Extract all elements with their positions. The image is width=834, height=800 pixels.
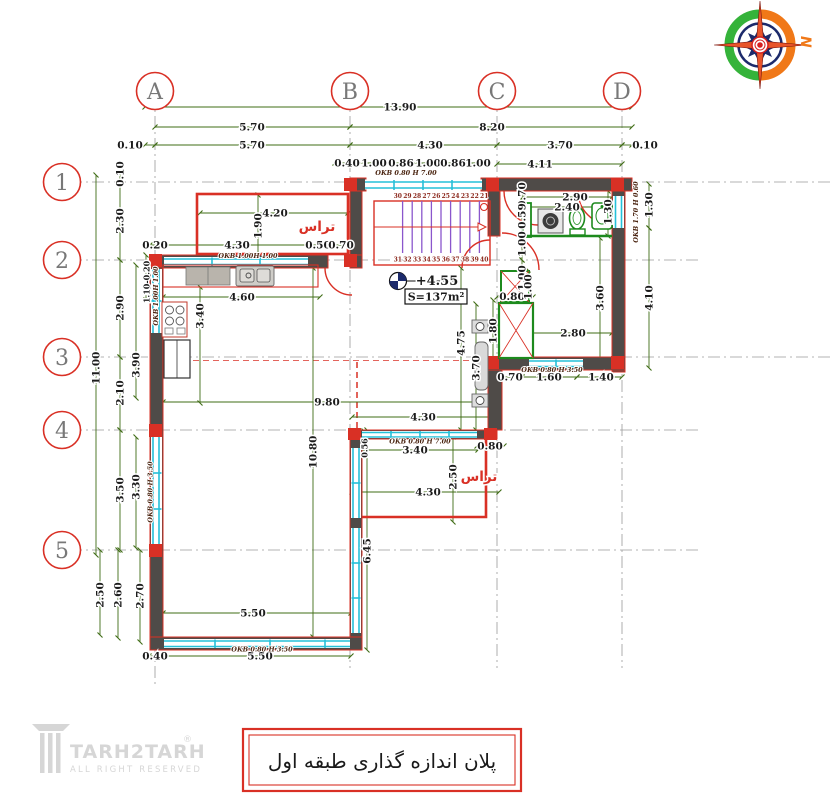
okb-left-window-up: OKB 1.00H 1.00 — [152, 266, 160, 326]
staircase — [374, 201, 490, 265]
dim-rr-140: 1.40 — [588, 372, 614, 384]
dim-t2-430: 4.30 — [415, 487, 441, 499]
dim-stairwin-3: 0.86 — [388, 158, 414, 170]
stair-b-33: 33 — [413, 257, 421, 264]
pillar-icon — [32, 724, 70, 773]
dim-k-020: 0.20 — [142, 240, 168, 252]
stair-t-27: 27 — [422, 193, 430, 200]
window-b-wall-lower — [351, 528, 361, 633]
svg-text:3: 3 — [55, 346, 69, 371]
dim-top-right: 4.11 — [527, 159, 553, 171]
okb-bottom-window: OKB 0.80 H 3.50 — [231, 646, 293, 654]
okb-rr-window: OKB 0.80 H 3.50 — [521, 366, 583, 374]
stove — [162, 302, 187, 337]
logo-registered-mark: ® — [183, 735, 192, 745]
dim-r23: 2.90 — [115, 295, 127, 321]
dim-span-ab: 5.70 — [239, 122, 265, 134]
stair-t-24: 24 — [451, 193, 459, 200]
plan-title: پلان اندازه گذاری طبقه اول — [268, 749, 496, 774]
title-box: پلان اندازه گذاری طبقه اول — [243, 729, 521, 791]
compass-rose-icon: N — [714, 1, 813, 89]
dim-r1-edge: 0.10 — [115, 161, 127, 187]
dim-bl-260: 2.60 — [113, 582, 125, 608]
dim-t1-190: 1.90 — [253, 213, 265, 239]
okb-bath-window: OKB 1.70 H 0.60 — [632, 181, 640, 243]
dim-c-1080: 10.80 — [308, 436, 320, 469]
dim-s-100a: 1.00 — [517, 231, 529, 257]
dim-cd: 3.70 — [547, 140, 573, 152]
window-stair-top — [365, 180, 482, 191]
dim-c-980: 9.80 — [314, 397, 340, 409]
drawing-sheet: A B C D 1 2 3 4 5 N TARH2TARH ® AL — [0, 0, 834, 800]
dim-total-height: 11.00 — [91, 352, 103, 385]
dim-right-130: 1.30 — [644, 192, 656, 218]
dim-t2-250: 2.50 — [448, 464, 460, 490]
svg-text:2: 2 — [55, 249, 69, 274]
dim-bath-130-in: 1.30 — [603, 199, 615, 225]
stair-t-25: 25 — [442, 193, 450, 200]
dim-stairwin-2: 1.00 — [361, 158, 387, 170]
compass-north-label: N — [797, 36, 813, 48]
dim-k-340: 3.40 — [195, 303, 207, 329]
stair-b-36: 36 — [442, 257, 450, 264]
stair-t-28: 28 — [413, 193, 421, 200]
dim-bl-270: 2.70 — [135, 583, 147, 609]
stair-b-38: 38 — [461, 257, 469, 264]
label-terrace-mid: تراس — [461, 469, 498, 485]
dim-k-460: 4.60 — [229, 292, 255, 304]
door-kitchen-hall — [325, 268, 352, 295]
svg-text:C: C — [489, 80, 506, 105]
stair-t-30: 30 — [394, 193, 402, 200]
dim-r12: 2.30 — [115, 208, 127, 234]
dim-c-370: 3.70 — [471, 355, 483, 381]
stair-b-31: 31 — [394, 257, 402, 264]
projection-dashed-lines — [163, 361, 486, 429]
dim-right-410: 4.10 — [644, 285, 656, 311]
svg-text:D: D — [613, 80, 631, 105]
dim-duct-080: 0.80 — [499, 291, 525, 303]
dim-stairwin-1: 0.40 — [334, 158, 360, 170]
window-bath-right — [613, 196, 624, 228]
stair-t-23: 23 — [461, 193, 469, 200]
dim-r34: 2.10 — [115, 380, 127, 406]
dim-stairwin-4: 1.00 — [415, 158, 441, 170]
stair-b-37: 37 — [451, 257, 459, 264]
okb-t2-window: OKB 0.80 H 7.00 — [389, 438, 451, 446]
logo-tagline: ALL RIGHT RESERVED — [70, 765, 202, 775]
stair-direction-arrow — [478, 223, 486, 231]
dim-rr-070: 0.70 — [497, 372, 523, 384]
dim-duct-180: 1.80 — [488, 318, 500, 344]
logo: TARH2TARH ® ALL RIGHT RESERVED — [32, 724, 206, 775]
okb-kitchen-window: OKB 1.00H 1.00 — [218, 252, 278, 260]
grid-column-a: A — [137, 73, 174, 110]
grid-row-4: 4 — [44, 412, 81, 449]
dim-edge-right: 0.10 — [632, 140, 658, 152]
windows — [151, 180, 624, 649]
dim-rr-280: 2.80 — [560, 328, 586, 340]
dim-k-070: 0.70 — [328, 240, 354, 252]
dim-c-340: 3.40 — [402, 445, 428, 457]
grid-row-2: 2 — [44, 242, 81, 279]
dim-s-059: 0.59 — [517, 203, 529, 229]
dim-stairwin-5: 0.86 — [440, 158, 466, 170]
label-area: S=137m² — [408, 291, 465, 304]
stair-t-26: 26 — [432, 193, 440, 200]
stair-t-29: 29 — [403, 193, 411, 200]
dim-bc: 4.30 — [417, 140, 443, 152]
stair-b-32: 32 — [403, 257, 411, 264]
dim-in-left-390: 3.90 — [131, 352, 143, 378]
grid-column-c: C — [479, 73, 516, 110]
dim-in-left-330: 3.30 — [131, 474, 143, 500]
kitchen-sink — [236, 266, 274, 286]
grid-row-5: 5 — [44, 532, 81, 569]
grid-row-1: 1 — [44, 164, 81, 201]
dim-span-bd: 8.20 — [479, 122, 505, 134]
grid-column-b: B — [332, 73, 369, 110]
svg-text:B: B — [342, 80, 358, 105]
door-stair-hall — [462, 240, 490, 268]
okb-stair-window: OKB 0.80 H 7.00 — [375, 169, 437, 177]
walls — [150, 178, 632, 650]
label-terrace-top: تراس — [299, 219, 336, 235]
dim-r45: 3.50 — [115, 477, 127, 503]
stair-b-35: 35 — [432, 257, 440, 264]
dim-hall-left: 1.10-0.20 — [142, 260, 152, 303]
dim-ab: 5.70 — [239, 140, 265, 152]
stair-b-39: 39 — [470, 257, 478, 264]
stair-t-21: 21 — [480, 193, 488, 200]
dim-k-430: 4.30 — [224, 240, 250, 252]
dim-bot-550a: 5.50 — [240, 608, 266, 620]
stair-b-34: 34 — [422, 257, 430, 264]
dim-bot-040: 0.40 — [142, 651, 168, 663]
dim-rr-360: 3.60 — [595, 285, 607, 311]
svg-text:A: A — [146, 80, 164, 105]
dim-duct-100: 1.00 — [523, 274, 535, 300]
svg-text:1: 1 — [55, 171, 69, 196]
dim-c-430a: 4.30 — [410, 412, 436, 424]
dim-c-080: 0.80 — [477, 441, 503, 453]
svg-text:5: 5 — [55, 539, 69, 564]
dim-k-050: 0.50 — [305, 240, 331, 252]
stair-t-22: 22 — [470, 193, 478, 200]
dim-stairwin-6: 1.00 — [465, 158, 491, 170]
dim-bath-240: 2.40 — [554, 202, 580, 214]
okb-left-window-low: OKB 0.80 H 3.50 — [147, 461, 155, 523]
label-level: +4.55 — [416, 274, 459, 289]
floorplan-canvas: A B C D 1 2 3 4 5 N TARH2TARH ® AL — [0, 0, 834, 800]
dim-c-056: 0.56 — [360, 438, 370, 458]
dim-bl-250: 2.50 — [95, 582, 107, 608]
grid-column-d: D — [604, 73, 641, 110]
dim-c-645: 6.45 — [362, 538, 374, 564]
refrigerator — [164, 340, 190, 378]
stair-start-marker — [481, 204, 488, 211]
svg-text:4: 4 — [55, 419, 69, 444]
dim-c-475: 4.75 — [456, 330, 468, 356]
grid-row-3: 3 — [44, 339, 81, 376]
dim-edge-left: 0.10 — [117, 140, 143, 152]
stair-b-40: 40 — [480, 257, 488, 264]
dim-t1-420: 4.20 — [262, 208, 288, 220]
dim-overall-width: 13.90 — [384, 102, 417, 114]
